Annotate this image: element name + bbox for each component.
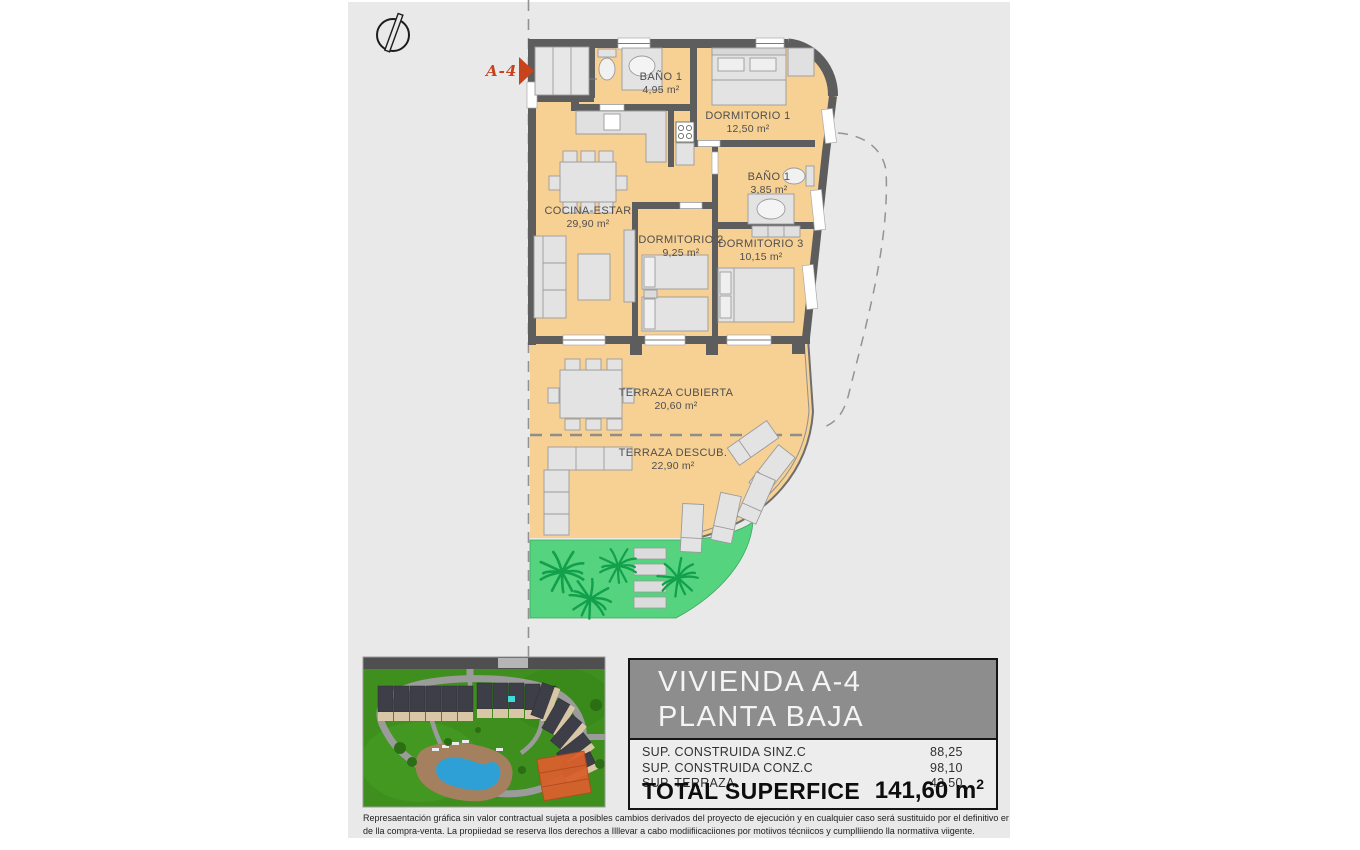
room-label-dormitorio-1: DORMITORIO 1 12,50 m² — [668, 110, 828, 136]
room-label-terraza-cubierta: TERRAZA CUBIERTA 20,60 m² — [596, 387, 756, 413]
info-panel-header: VIVIENDA A-4 PLANTA BAJA — [630, 660, 996, 740]
surface-row: SUP. CONSTRUIDA SINZ.C 88,25 — [642, 745, 996, 761]
info-panel: VIVIENDA A-4 PLANTA BAJA SUP. CONSTRUIDA… — [628, 658, 998, 810]
page: A-4 BAÑO 1 4,95 m² DORMITORIO 1 12,50 m²… — [0, 0, 1360, 850]
surface-row: SUP. CONSTRUIDA CONZ.C 98,10 — [642, 761, 996, 777]
room-label-dormitorio-3: DORMITORIO 3 10,15 m² — [681, 238, 841, 264]
unit-title: VIVIENDA A-4 — [658, 665, 996, 700]
arrow-right-icon — [519, 57, 534, 85]
total-value: 141,60 m2 — [875, 776, 984, 805]
aerial-site-photo — [360, 657, 610, 807]
unit-marker-label: A-4 — [486, 62, 517, 80]
total-label: TOTAL SUPERFICE — [642, 778, 860, 805]
unit-marker: A-4 — [486, 57, 534, 85]
room-label-banio-2: BAÑO 1 3,85 m² — [689, 171, 849, 197]
site-top-road — [363, 657, 605, 669]
total-surface-row: TOTAL SUPERFICE 141,60 m2 — [642, 776, 984, 805]
site-highlighted-unit — [537, 751, 592, 801]
room-label-cocina-estar: COCINA-ESTAR 29,90 m² — [508, 205, 668, 231]
disclaimer-line-2: de lla compra-venta. La propiiedad se re… — [363, 825, 1033, 838]
disclaimer-line-1: Represaentación gráfica sin valor contra… — [363, 812, 1033, 825]
room-label-banio-1: BAÑO 1 4,95 m² — [581, 71, 741, 97]
room-label-terraza-descubierta: TERRAZA DESCUB. 22,90 m² — [593, 447, 753, 473]
floor-title: PLANTA BAJA — [658, 700, 996, 735]
disclaimer-text: Represaentación gráfica sin valor contra… — [363, 812, 1033, 838]
